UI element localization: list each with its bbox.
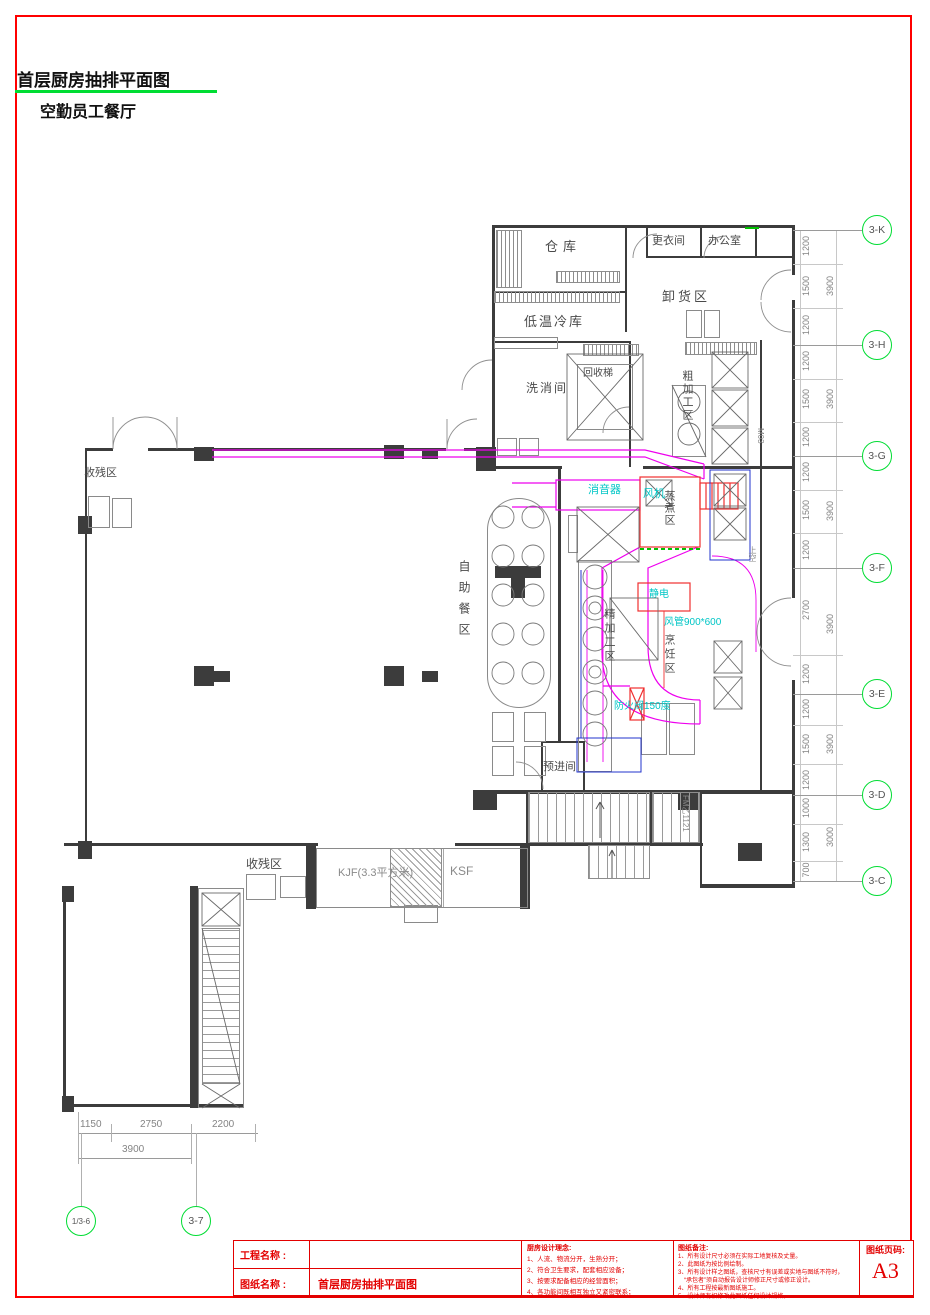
room-label-kjf: KJF(3.3平方米): [338, 864, 413, 880]
dim-right-4: 1500: [801, 382, 811, 416]
dim-bottom-2: 2200: [212, 1119, 234, 1130]
dim-bottom-total: 3900: [122, 1144, 144, 1155]
page-subtitle: 空勤员工餐厅: [40, 98, 136, 122]
page-number-label: 图纸页码:: [866, 1243, 905, 1256]
grid-bubble-3-7-label: 3-7: [188, 1215, 203, 1227]
dim-bottom-1: 2750: [140, 1119, 162, 1130]
room-label-office: 办公室: [708, 232, 741, 248]
grid-bubble-3K-label: 3-K: [869, 224, 885, 236]
annotation-duct-size: 风管900*600: [664, 613, 721, 628]
dim-right-total-1: 3900: [825, 382, 835, 416]
dim-right-9: 2700: [801, 593, 811, 627]
grid-bubble-3-7: 3-7: [181, 1206, 211, 1236]
project-name-label: 工程名称 :: [240, 1247, 286, 1262]
room-label-cold-storage: 低温冷库: [524, 311, 584, 330]
annotation-silencer: 消音器: [588, 481, 621, 497]
drawing-name-value: 首层厨房抽排平面图: [318, 1276, 417, 1292]
grid-bubble-3C: 3-C: [862, 866, 892, 896]
dim-right-11: 1200: [801, 692, 811, 726]
notes-item-5: 5、设计师有权修改此图纸任何设计规格。: [678, 1291, 789, 1300]
room-label-cooking: 烹饪区: [661, 634, 677, 676]
room-label-pre-entry: 预进间: [543, 758, 576, 774]
dim-right-total-0: 3900: [825, 269, 835, 303]
grid-bubble-1-3-6: 1/3-6: [66, 1206, 96, 1236]
drawing-sheet: 首层厨房抽排平面图 空勤员工餐厅: [0, 0, 930, 1315]
dim-right-1: 1500: [801, 269, 811, 303]
room-label-waste-2: 收残区: [246, 855, 282, 872]
dim-right-12: 1500: [801, 727, 811, 761]
grid-bubble-3G-label: 3-G: [868, 450, 886, 462]
annotation-upper-void: 上空: [747, 546, 758, 562]
room-label-ksf: KSF: [450, 864, 473, 878]
annotation-fire-damper: 防火阀150度: [614, 697, 671, 712]
dim-right-14: 1000: [801, 791, 811, 825]
grid-bubble-3G: 3-G: [862, 441, 892, 471]
dim-right-3: 1200: [801, 344, 811, 378]
grid-bubble-1-3-6-label: 1/3-6: [72, 1217, 90, 1226]
dim-right-2: 1200: [801, 308, 811, 342]
dim-right-total-5: 3000: [825, 820, 835, 854]
concept-item-2: 3、按要求配备相应的经营面积；: [527, 1275, 622, 1285]
page-number-value: A3: [872, 1258, 899, 1284]
dim-right-10: 1200: [801, 657, 811, 691]
concept-item-1: 2、符合卫生要求，配套相应设备；: [527, 1264, 628, 1274]
concept-item-3: 4、各功能间既相互独立又紧密联系；: [527, 1286, 635, 1296]
room-label-changing: 更衣间: [652, 232, 685, 248]
room-label-washing: 洗消间: [526, 379, 568, 396]
dim-right-8: 1200: [801, 533, 811, 567]
room-label-fine-prep: 精加工区: [601, 608, 617, 664]
dim-bottom-0: 1150: [80, 1119, 102, 1130]
grid-bubble-3D: 3-D: [862, 780, 892, 810]
dim-right-6: 1200: [801, 455, 811, 489]
annotation-door-m03: M03: [756, 428, 765, 444]
dim-right-0: 1200: [801, 229, 811, 263]
annotation-fan: 风机: [643, 485, 665, 501]
dim-right-total-4: 3900: [825, 727, 835, 761]
grid-bubble-3F: 3-F: [862, 553, 892, 583]
grid-bubble-3K: 3-K: [862, 215, 892, 245]
annotation-electrostatic: 静电: [649, 585, 669, 600]
grid-bubble-3H-label: 3-H: [869, 339, 886, 351]
room-label-rough-prep: 粗加工区: [679, 370, 695, 422]
page-title: 首层厨房抽排平面图: [17, 66, 170, 91]
room-label-buffet: 自助餐区: [456, 560, 473, 644]
grid-bubble-3F-label: 3-F: [869, 562, 885, 574]
room-label-storage: 仓库: [545, 236, 581, 255]
dim-right-16: 700: [801, 853, 811, 887]
dim-right-7: 1500: [801, 493, 811, 527]
dim-right-5: 1200: [801, 420, 811, 454]
room-label-unloading: 卸货区: [662, 286, 710, 305]
drawing-name-label: 图纸名称 :: [240, 1276, 286, 1291]
grid-bubble-3E: 3-E: [862, 679, 892, 709]
grid-bubble-3E-label: 3-E: [869, 688, 885, 700]
grid-bubble-3C-label: 3-C: [869, 875, 886, 887]
room-label-recycle-lift: 回收梯: [583, 364, 613, 379]
grid-bubble-3D-label: 3-D: [869, 789, 886, 801]
grid-bubble-3H: 3-H: [862, 330, 892, 360]
concept-title: 厨房设计理念:: [527, 1243, 571, 1253]
room-label-waste-1: 收残区: [84, 464, 117, 480]
annotation-fire-door: FM乙1121: [680, 795, 691, 832]
dim-right-total-2: 3900: [825, 494, 835, 528]
concept-item-0: 1、人流、物流分开，生熟分开；: [527, 1253, 622, 1263]
dim-right-total-3: 3900: [825, 607, 835, 641]
